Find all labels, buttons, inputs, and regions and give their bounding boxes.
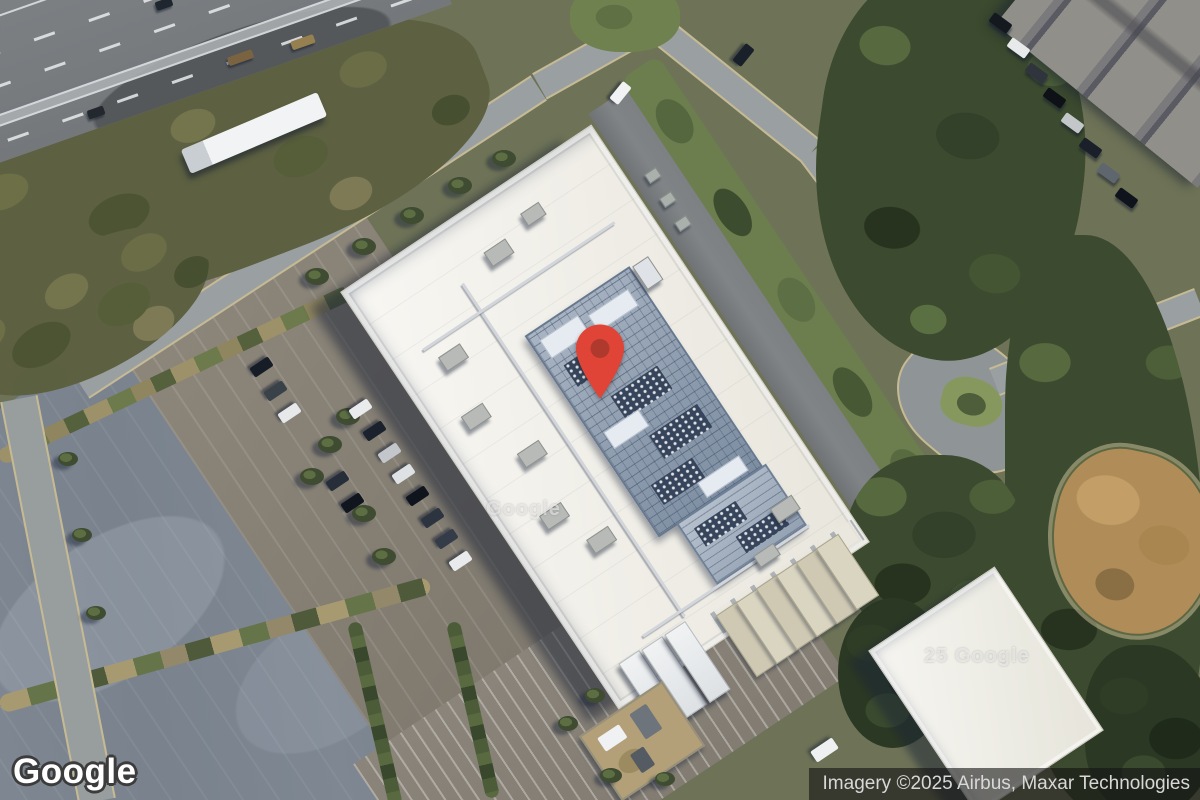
generator <box>597 724 628 752</box>
location-pin[interactable] <box>573 323 627 400</box>
satellite-map[interactable]: Google 25 Google Google Imagery ©2025 Ai… <box>0 0 1200 800</box>
bush <box>400 207 424 224</box>
car <box>1114 187 1138 209</box>
bush <box>86 606 106 620</box>
watermark: 25 Google <box>924 645 1030 668</box>
bush <box>492 150 516 167</box>
roof-unit <box>517 440 548 469</box>
google-logo[interactable]: Google <box>13 752 137 792</box>
car <box>732 43 754 67</box>
bush <box>72 528 92 542</box>
work-truck <box>227 49 255 66</box>
pin-body <box>576 325 624 399</box>
car <box>154 0 173 11</box>
generator <box>629 704 662 740</box>
chiller-unit <box>649 404 713 459</box>
bush <box>318 436 342 453</box>
generator <box>630 746 656 773</box>
bush <box>585 688 605 703</box>
imagery-attribution: Imagery ©2025 Airbus, Maxar Technologies <box>809 768 1200 800</box>
bush <box>305 268 329 285</box>
roof-unit <box>483 238 514 267</box>
roof-unit <box>520 202 547 227</box>
bush <box>558 716 578 731</box>
pin-dot <box>591 339 610 358</box>
bush <box>448 177 472 194</box>
van <box>810 737 839 762</box>
bush <box>655 772 675 786</box>
roof-unit <box>438 343 469 372</box>
watermark: Google <box>486 498 561 521</box>
bush <box>300 468 324 485</box>
roof-unit <box>586 526 617 555</box>
car <box>1096 162 1120 184</box>
bush <box>600 768 622 783</box>
bush <box>372 548 396 565</box>
bush <box>352 238 376 255</box>
work-truck <box>290 34 316 50</box>
roof-unit <box>461 403 492 432</box>
bush <box>58 452 78 466</box>
car <box>87 105 106 119</box>
